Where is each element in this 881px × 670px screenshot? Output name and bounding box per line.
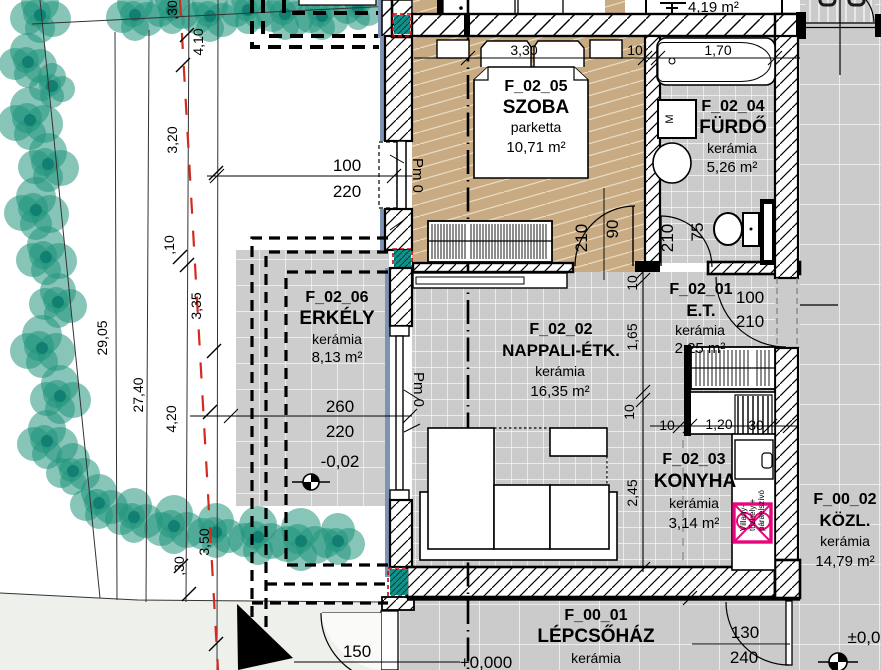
- svg-text:-0,02: -0,02: [321, 452, 360, 471]
- svg-text:3,50: 3,50: [196, 528, 212, 555]
- svg-text:27,40: 27,40: [130, 377, 146, 412]
- svg-text:75: 75: [688, 223, 707, 242]
- svg-text:LÉPCSŐHÁZ: LÉPCSŐHÁZ: [537, 625, 655, 647]
- svg-text:240: 240: [730, 648, 758, 667]
- svg-text:F_02_01: F_02_01: [669, 281, 732, 298]
- svg-text:F_02_03: F_02_03: [662, 451, 725, 468]
- svg-text:8,13 m²: 8,13 m²: [312, 349, 363, 366]
- svg-text:kerámia: kerámia: [535, 363, 585, 379]
- svg-text:260: 260: [326, 397, 354, 416]
- svg-text:1,70: 1,70: [704, 42, 731, 58]
- svg-text:3,14 m²: 3,14 m²: [669, 515, 720, 532]
- svg-text:4,10: 4,10: [190, 28, 206, 55]
- svg-text:4,20: 4,20: [163, 405, 179, 432]
- svg-text:Pm 0: Pm 0: [410, 372, 427, 407]
- svg-text:130: 130: [731, 623, 759, 642]
- svg-text:F_02_06: F_02_06: [305, 289, 368, 306]
- svg-text:kerámia: kerámia: [571, 650, 621, 666]
- svg-text:5,26 m²: 5,26 m²: [707, 159, 758, 176]
- svg-text:10: 10: [659, 417, 675, 433]
- svg-text:100: 100: [736, 288, 764, 307]
- svg-text:Pm 0: Pm 0: [409, 158, 426, 193]
- svg-text:2,45: 2,45: [624, 479, 640, 506]
- svg-text:1,20: 1,20: [705, 416, 732, 432]
- svg-text:210: 210: [572, 224, 591, 252]
- svg-text:F_02_02: F_02_02: [529, 321, 592, 338]
- svg-text:FÜRDŐ: FÜRDŐ: [699, 116, 767, 138]
- svg-text:30: 30: [748, 417, 764, 433]
- svg-text:kerámia: kerámia: [312, 331, 362, 347]
- svg-text:tűzhely +: tűzhely +: [748, 498, 757, 531]
- svg-text:14,79 m²: 14,79 m²: [815, 553, 874, 570]
- svg-text:F_02_04: F_02_04: [701, 98, 764, 115]
- svg-text:Villany-: Villany-: [739, 505, 748, 531]
- svg-text:3,35: 3,35: [188, 292, 204, 319]
- svg-text:210: 210: [658, 224, 677, 252]
- svg-text:100: 100: [333, 156, 361, 175]
- svg-text:1,65: 1,65: [624, 323, 640, 350]
- svg-text:210: 210: [736, 312, 764, 331]
- svg-text:parketta: parketta: [511, 119, 562, 135]
- svg-text:ERKÉLY: ERKÉLY: [299, 307, 375, 329]
- svg-text:90: 90: [603, 220, 622, 239]
- svg-text:16,35 m²: 16,35 m²: [530, 383, 589, 400]
- svg-text:páraelszívó: páraelszívó: [757, 490, 766, 531]
- svg-text:10: 10: [627, 42, 643, 58]
- svg-text:29,05: 29,05: [94, 320, 110, 355]
- svg-text:F_00_02: F_00_02: [813, 491, 876, 508]
- svg-text:E.T.: E.T.: [686, 301, 715, 320]
- svg-text:NAPPALI-ÉTK.: NAPPALI-ÉTK.: [502, 341, 620, 360]
- svg-text:10: 10: [621, 404, 637, 420]
- svg-text:kerámia: kerámia: [669, 495, 719, 511]
- svg-text:KÖZL.: KÖZL.: [820, 511, 871, 530]
- svg-text:2,25 m²: 2,25 m²: [675, 340, 726, 357]
- svg-text:3,30: 3,30: [510, 42, 537, 58]
- svg-text:3,20: 3,20: [164, 126, 180, 153]
- svg-text:4,19 m²: 4,19 m²: [688, 0, 739, 16]
- svg-text:,30: ,30: [171, 556, 187, 576]
- svg-text:F_00_01: F_00_01: [564, 607, 627, 624]
- svg-text:10,71 m²: 10,71 m²: [506, 139, 565, 156]
- svg-text:220: 220: [333, 182, 361, 201]
- svg-text:KONYHA: KONYHA: [654, 471, 737, 492]
- svg-text:kerámia: kerámia: [820, 533, 870, 549]
- svg-text:SZOBA: SZOBA: [503, 97, 570, 118]
- svg-text:10: 10: [624, 275, 640, 291]
- svg-text:±0,0: ±0,0: [848, 628, 881, 647]
- svg-text:150: 150: [343, 642, 371, 661]
- svg-text:,10: ,10: [161, 235, 177, 255]
- svg-text:kerámia: kerámia: [707, 140, 757, 156]
- svg-text:M: M: [664, 114, 676, 123]
- svg-text:+0,000: +0,000: [460, 653, 512, 670]
- svg-text:,30: ,30: [164, 0, 180, 20]
- svg-text:220: 220: [326, 422, 354, 441]
- svg-text:F_02_05: F_02_05: [504, 78, 567, 95]
- svg-text:kerámia: kerámia: [675, 322, 725, 338]
